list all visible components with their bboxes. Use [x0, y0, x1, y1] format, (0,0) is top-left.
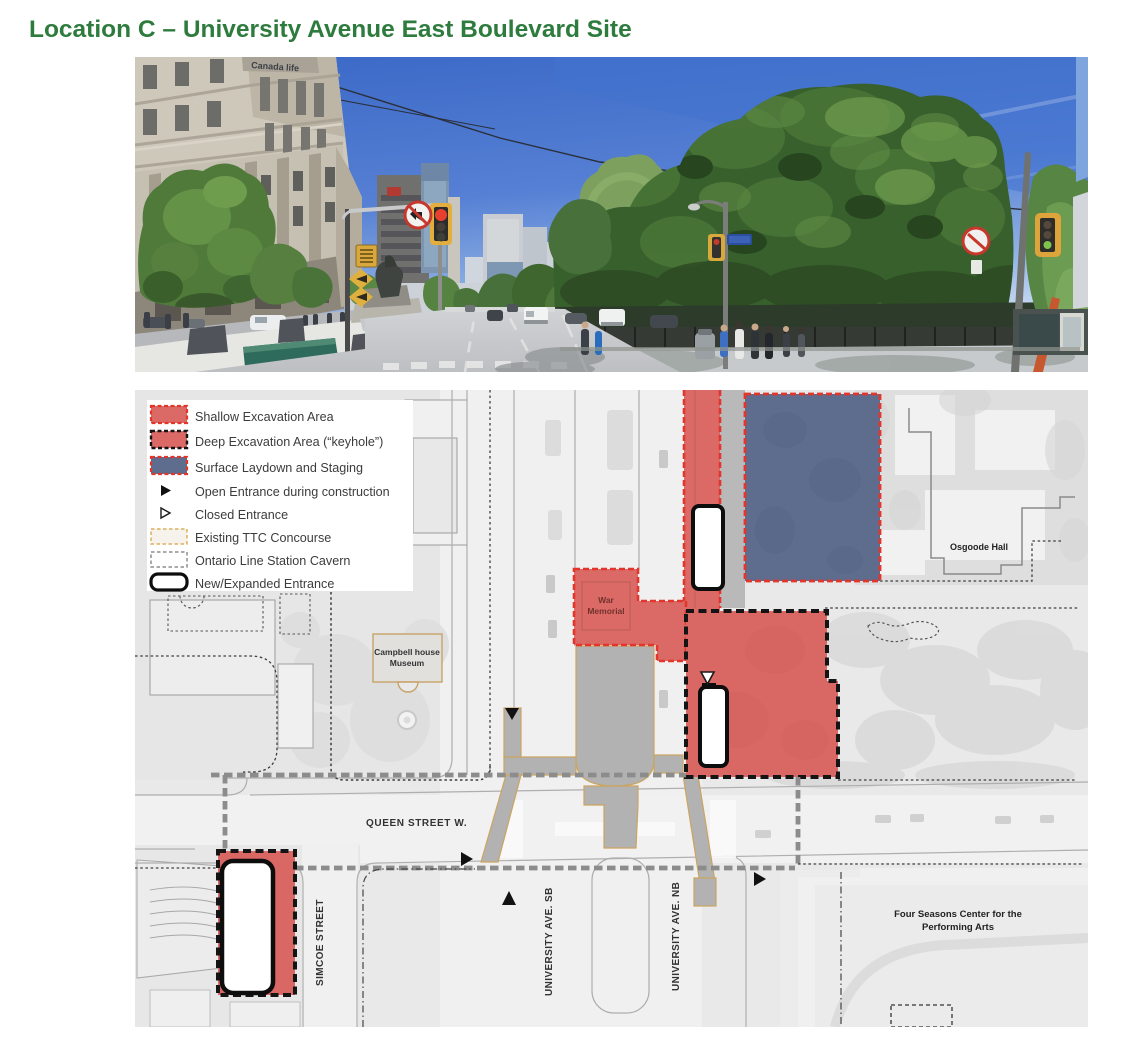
svg-text:UNIVERSITY AVE. SB: UNIVERSITY AVE. SB: [544, 887, 555, 996]
svg-text:UNIVERSITY AVE. NB: UNIVERSITY AVE. NB: [671, 882, 682, 991]
svg-text:War: War: [598, 595, 614, 605]
svg-text:Open Entrance during construct: Open Entrance during construction: [195, 485, 390, 499]
svg-text:Existing TTC Concourse: Existing TTC Concourse: [195, 531, 331, 545]
svg-text:Performing Arts: Performing Arts: [922, 922, 994, 933]
svg-text:Deep Excavation Area (“keyhole: Deep Excavation Area (“keyhole”): [195, 435, 383, 449]
svg-text:Surface Laydown and Staging: Surface Laydown and Staging: [195, 461, 363, 475]
svg-text:Memorial: Memorial: [587, 606, 624, 616]
svg-text:Closed Entrance: Closed Entrance: [195, 508, 288, 522]
svg-text:New/Expanded Entrance: New/Expanded Entrance: [195, 577, 334, 591]
svg-text:Osgoode Hall: Osgoode Hall: [950, 542, 1008, 552]
svg-text:Campbell house: Campbell house: [374, 647, 440, 657]
svg-text:Shallow Excavation Area: Shallow Excavation Area: [195, 410, 334, 424]
svg-text:SIMCOE STREET: SIMCOE STREET: [315, 899, 326, 986]
svg-text:Four Seasons Center for the: Four Seasons Center for the: [894, 909, 1022, 920]
svg-text:Ontario Line Station Cavern: Ontario Line Station Cavern: [195, 554, 350, 568]
svg-text:QUEEN STREET W.: QUEEN STREET W.: [366, 818, 467, 829]
svg-text:Museum: Museum: [390, 658, 425, 668]
